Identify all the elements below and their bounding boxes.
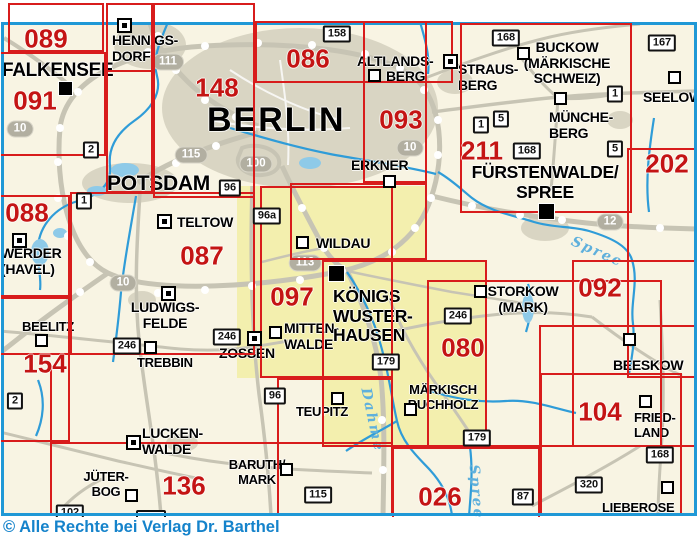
sheet-number-202: 202 [645,149,688,180]
sheet-outline-6 [363,21,427,183]
town-symbol-koenigs-wusterhausen [328,265,345,282]
road-badge-168-4: 168 [646,447,674,464]
town-symbol-inner [448,59,453,64]
sheet-outline-line-1 [50,442,393,444]
town-symbol-trebbin [144,341,157,354]
town-symbol-storkow-mark [474,285,487,298]
road-badge-96-11: 96 [219,180,241,197]
sheet-number-089: 089 [24,24,67,55]
town-symbol-beelitz [35,334,48,347]
town-symbol-jueterbog [125,489,138,502]
town-symbol-teupitz [331,392,344,405]
sheet-number-086: 086 [286,44,329,75]
road-badge-5-8: 5 [607,141,623,158]
town-symbol-inner [162,219,167,224]
town-symbol-werder-havel [12,233,27,248]
sheet-number-092: 092 [578,273,621,304]
sheet-number-093: 093 [379,105,422,136]
road-badge-87-23: 87 [512,489,534,506]
town-symbol-inner [131,440,136,445]
town-symbol-teltow [157,214,172,229]
town-symbol-fuerstenwalde-spree [538,203,555,220]
sheet-number-080: 080 [441,333,484,364]
road-badge-2-13: 2 [7,393,23,410]
road-badge-96a-12: 96a [253,208,281,225]
town-symbol-inner [17,238,22,243]
sheet-number-097: 097 [270,282,313,313]
left-margin [0,22,1,516]
road-badge-158-0: 158 [323,26,351,43]
map-border-bottom [1,513,697,516]
sheet-number-087: 087 [180,241,223,272]
sheet-number-154: 154 [23,349,66,380]
road-badge-1-5: 1 [473,117,489,134]
road-badge-179-17: 179 [372,354,400,371]
road-badge-1-7: 1 [607,86,623,103]
sheet-number-148: 148 [195,73,238,104]
town-symbol-altlandsberg-2 [368,69,381,82]
sheet-number-088: 088 [5,198,48,229]
road-badge-167-1: 167 [648,35,676,52]
town-symbol-zossen [247,331,262,346]
road-badge-168-3: 168 [513,143,541,160]
town-symbol-inner [122,23,127,28]
town-symbol-ludwigsfelde [161,286,176,301]
road-badge-115-20: 115 [304,487,332,504]
road-badge-2-9: 2 [83,142,99,159]
town-symbol-seelow [668,71,681,84]
sheet-number-026: 026 [418,482,461,513]
town-symbol-luckenwalde [126,435,141,450]
sheet-number-091: 091 [13,86,56,117]
sheet-number-211: 211 [461,136,503,167]
road-badge-179-18: 179 [463,430,491,447]
sheet-outline-12 [290,183,427,260]
road-badge-96-19: 96 [264,388,286,405]
town-symbol-falkensee [58,81,73,96]
road-badge-1-10: 1 [76,193,92,210]
town-symbol-maerkisch-buchholz [404,403,417,416]
town-symbol-strausberg [443,54,458,69]
sheet-number-104: 104 [578,397,621,428]
town-symbol-erkner [383,175,396,188]
road-badge-246-15: 246 [213,329,241,346]
town-symbol-mittenwalde [269,326,282,339]
map-index-page: SpreeSpreeDahme FALKENSEEHENNIGS-DORFPOT… [0,0,700,560]
road-badge-168-2: 168 [492,30,520,47]
sheet-number-136: 136 [162,471,205,502]
road-badge-246-16: 246 [444,308,472,325]
road-badge-5-6: 5 [493,111,509,128]
town-symbol-baruth-mark [280,463,293,476]
town-symbol-lieberose [661,481,674,494]
road-badge-246-14: 246 [113,338,141,355]
town-symbol-inner [166,291,171,296]
road-badge-320-22: 320 [575,477,603,494]
map-canvas: SpreeSpreeDahme FALKENSEEHENNIGS-DORFPOT… [0,0,700,560]
copyright-text: © Alle Rechte bei Verlag Dr. Barthel [3,518,280,537]
town-symbol-wildau [296,236,309,249]
map-border-right [694,22,697,516]
town-symbol-beeskow [623,333,636,346]
town-symbol-muencheberg [554,92,567,105]
town-symbol-hennigsdorf [117,18,132,33]
town-symbol-buckow [517,47,530,60]
town-symbol-inner [252,336,257,341]
town-symbol-friedland [639,395,652,408]
